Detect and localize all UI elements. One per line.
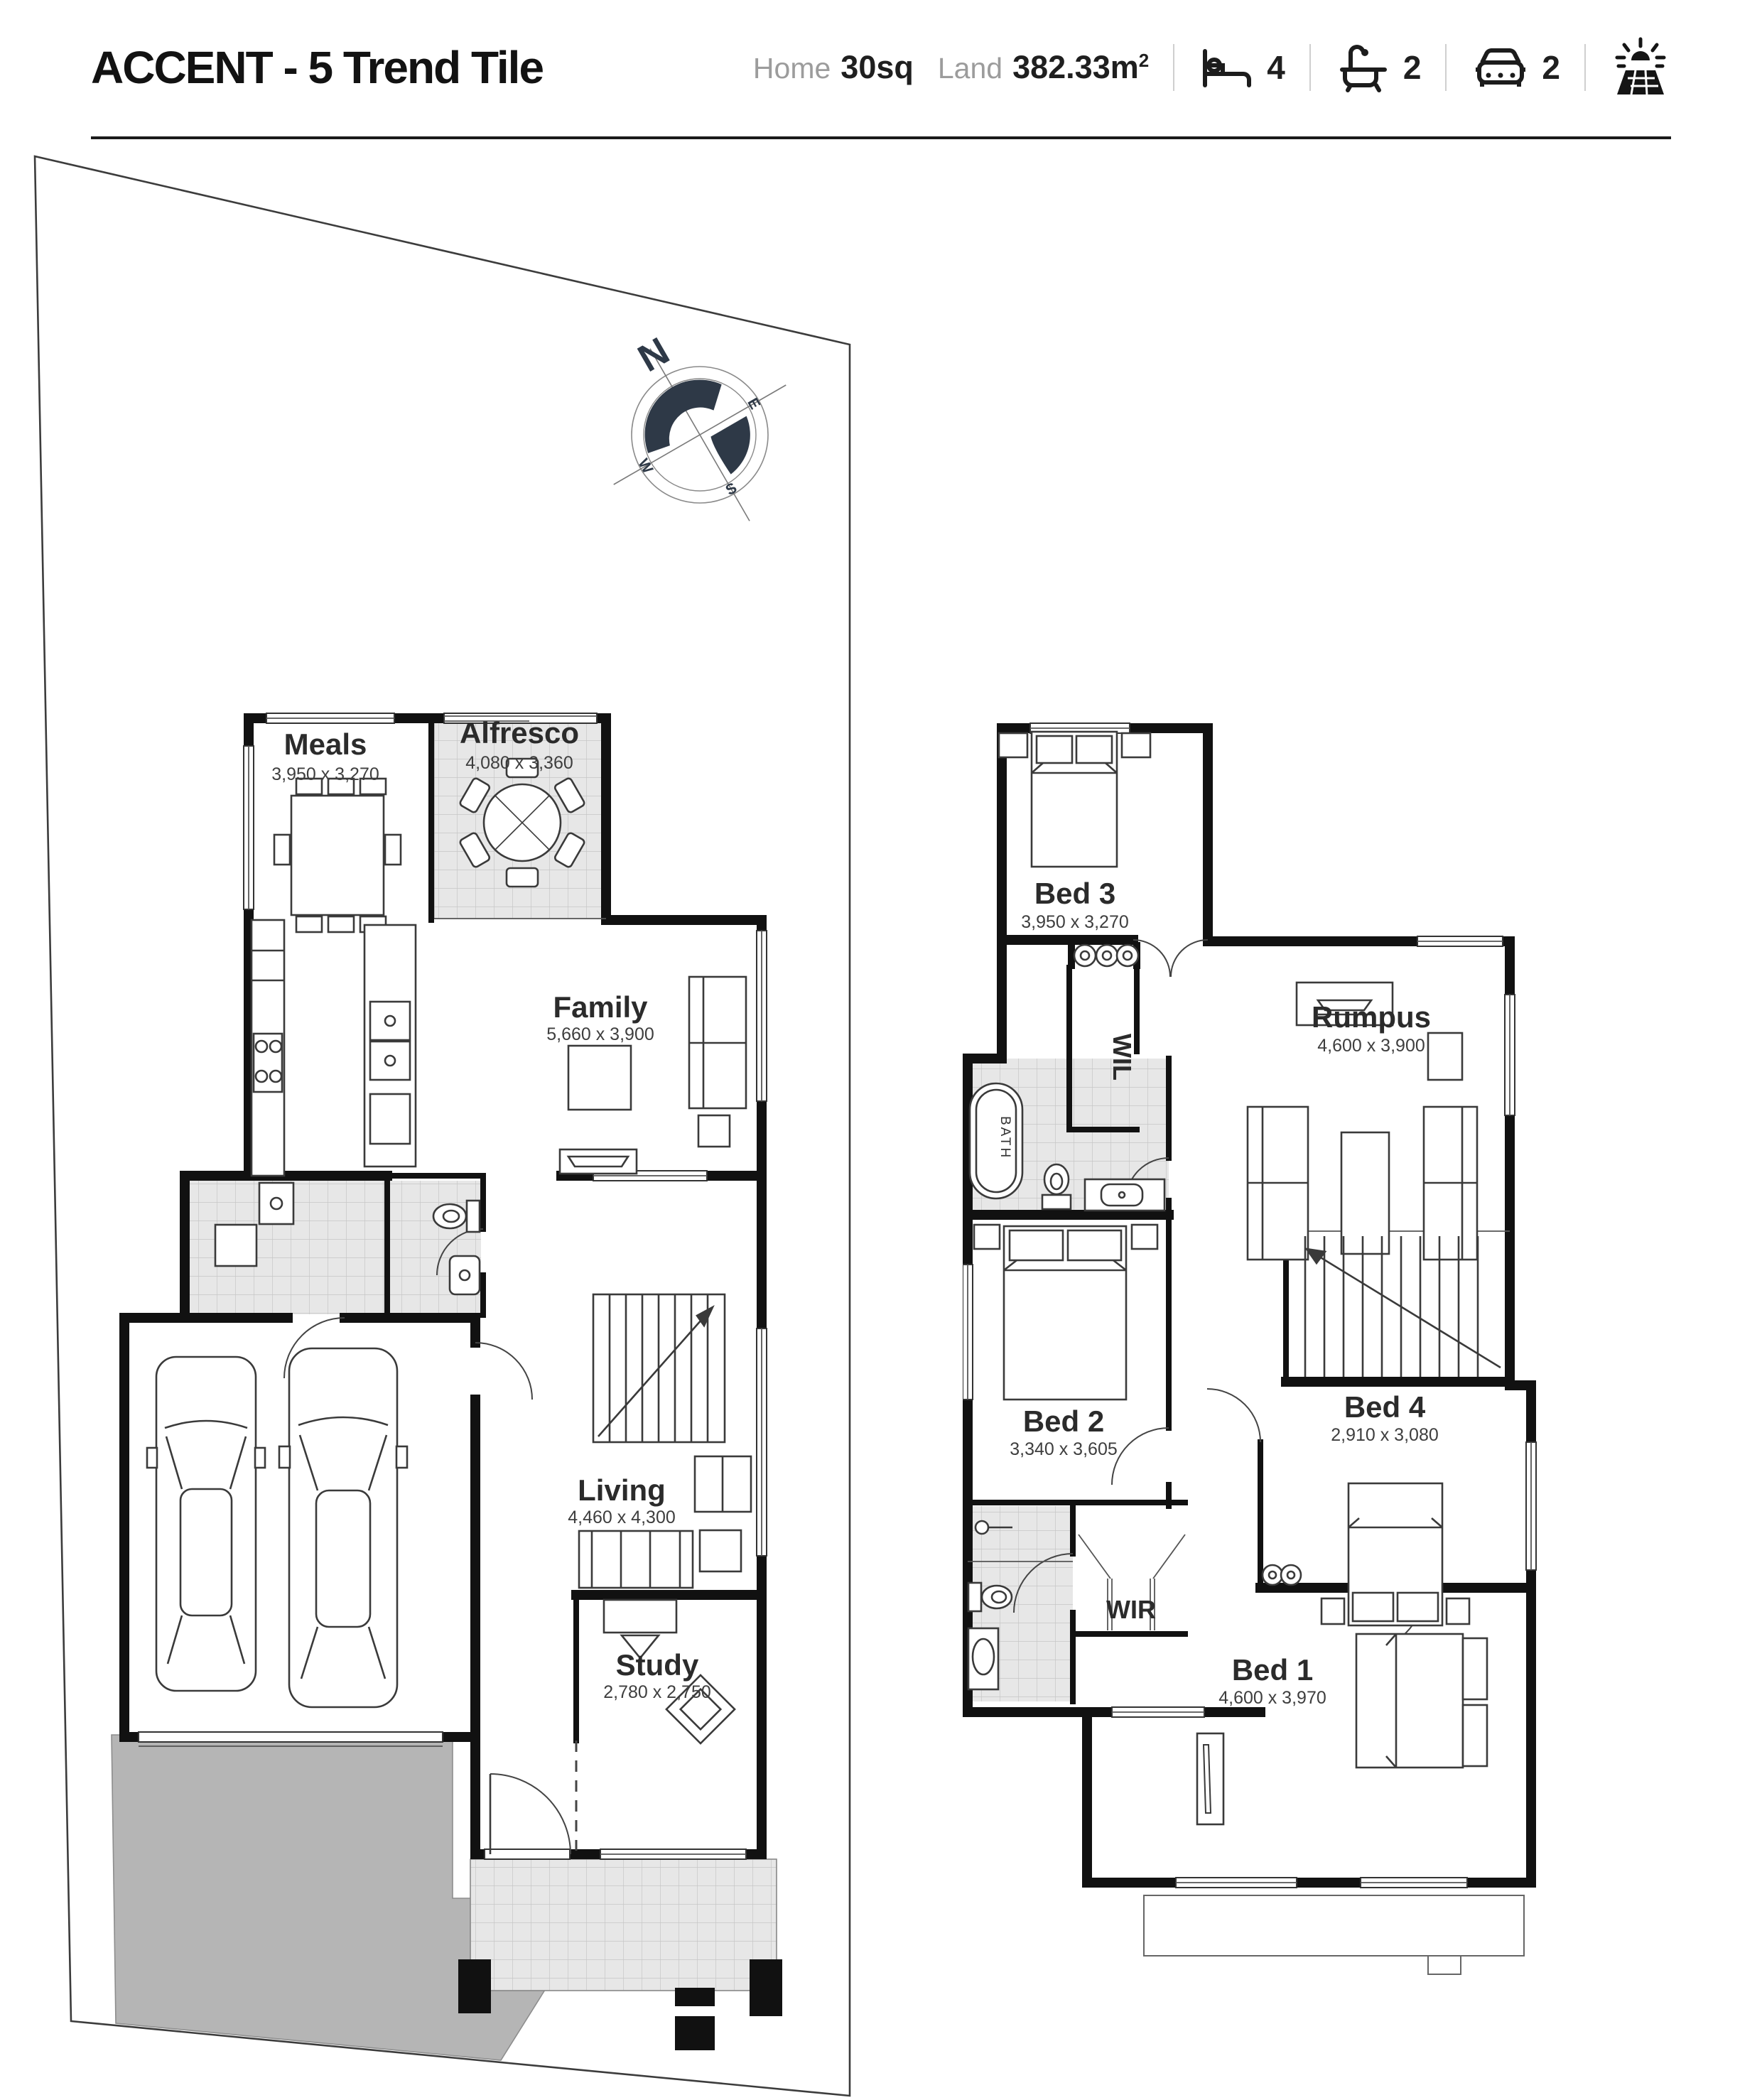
car-left (147, 1357, 265, 1691)
alfresco-label: Alfresco (460, 716, 579, 749)
header-stats: Home 30sq Land 382.33m2 4 (753, 36, 1671, 99)
bedrooms-stat: 4 (1199, 44, 1285, 91)
page-title: ACCENT - 5 Trend Tile (91, 41, 543, 94)
meals-dims: 3,950 x 3,270 (271, 764, 379, 784)
bed2-furniture (974, 1225, 1157, 1400)
bed4-dims: 2,910 x 3,080 (1331, 1425, 1439, 1445)
stairs (593, 1294, 725, 1442)
stat-divider (1445, 44, 1447, 91)
header-rule (91, 136, 1671, 139)
alfresco-dims: 4,080 x 3,360 (465, 753, 573, 773)
bathrooms-count: 2 (1403, 48, 1422, 87)
bed1-label: Bed 1 (1232, 1653, 1313, 1687)
bed3-furniture (999, 732, 1150, 867)
bath-icon (1335, 43, 1392, 92)
stat-divider (1173, 44, 1174, 91)
land-size-stat: Land 382.33m2 (938, 49, 1149, 86)
bedrooms-count: 4 (1267, 48, 1285, 87)
bathrooms-stat: 2 (1335, 43, 1422, 92)
home-value: 30sq (841, 49, 914, 86)
bed-icon (1199, 44, 1255, 91)
lower-roof-outline (1144, 1895, 1524, 1974)
header: ACCENT - 5 Trend Tile Home 30sq Land 382… (91, 21, 1671, 114)
floorplan-page: ACCENT - 5 Trend Tile Home 30sq Land 382… (0, 0, 1762, 2100)
car-icon (1471, 44, 1530, 91)
meals-label: Meals (284, 727, 367, 761)
cars-stat: 2 (1471, 44, 1560, 91)
solar-icon (1610, 36, 1671, 99)
study-dims: 2,780 x 2,750 (603, 1682, 711, 1702)
home-size-stat: Home 30sq (753, 49, 914, 86)
bed2-label: Bed 2 (1023, 1404, 1104, 1438)
bed3-label: Bed 3 (1034, 877, 1115, 910)
stat-divider (1584, 44, 1586, 91)
wil-label: WIL (1108, 1034, 1137, 1081)
first-floor-plan: Bed 3 3,950 x 3,270 Rumpus 4,600 x 3,900… (963, 718, 1567, 1975)
ground-floor-plan: N E W S (32, 149, 856, 2100)
rumpus-label: Rumpus (1312, 1000, 1431, 1034)
living-dims: 4,460 x 4,300 (568, 1508, 676, 1527)
living-label: Living (578, 1473, 666, 1507)
porch-tiles (470, 1859, 777, 1991)
cars-count: 2 (1542, 48, 1560, 87)
wir-label: WIR (1106, 1595, 1156, 1624)
land-value: 382.33m2 (1012, 49, 1149, 86)
dining-table (274, 779, 401, 932)
bed4-furniture (1321, 1483, 1469, 1625)
family-label: Family (553, 990, 648, 1024)
land-label: Land (938, 52, 1002, 85)
bath-label: BATH (998, 1116, 1012, 1159)
bed2-dims: 3,340 x 3,605 (1010, 1439, 1118, 1459)
car-right (279, 1348, 407, 1707)
home-label: Home (753, 52, 831, 85)
bed4-label: Bed 4 (1344, 1390, 1426, 1424)
rumpus-dims: 4,600 x 3,900 (1317, 1036, 1425, 1056)
bed1-dims: 4,600 x 3,970 (1218, 1688, 1326, 1708)
family-dims: 5,660 x 3,900 (546, 1024, 654, 1044)
stat-divider (1309, 44, 1311, 91)
study-label: Study (616, 1648, 699, 1682)
bed3-dims: 3,950 x 3,270 (1021, 912, 1129, 932)
